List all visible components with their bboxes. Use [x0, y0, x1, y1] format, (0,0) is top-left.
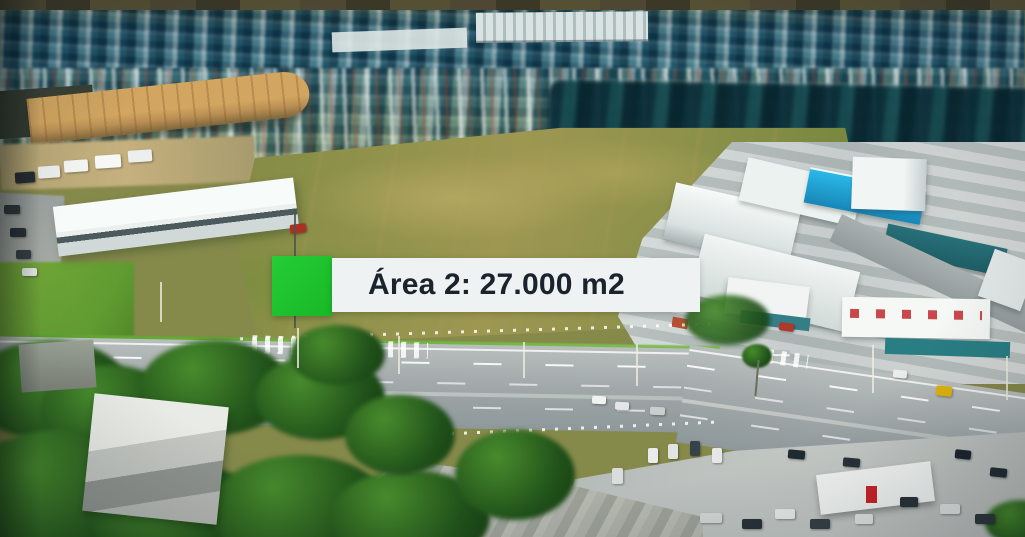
- car: [650, 407, 665, 416]
- aerial-photo: Área 2: 27.000 m2: [0, 0, 1025, 537]
- flag-pole: [294, 210, 296, 328]
- storefront-billboard: [842, 297, 991, 340]
- light-pole: [523, 342, 525, 378]
- tree: [345, 395, 455, 475]
- parked-car: [900, 497, 918, 507]
- parked-truck: [64, 159, 89, 173]
- parked-car: [648, 448, 658, 463]
- parked-truck: [95, 154, 122, 169]
- parked-car: [4, 205, 20, 214]
- parked-car: [855, 514, 873, 524]
- light-pole: [1006, 356, 1008, 400]
- parked-car: [16, 250, 31, 259]
- white-tower: [851, 157, 927, 212]
- car: [843, 457, 861, 467]
- shed-roof: [18, 339, 96, 392]
- parked-truck: [128, 149, 153, 163]
- parked-car: [10, 228, 26, 237]
- car: [615, 402, 629, 411]
- light-pole: [636, 344, 638, 386]
- parked-car: [742, 519, 762, 529]
- tree: [455, 430, 575, 520]
- lane-line: [684, 387, 1025, 439]
- light-pole: [160, 282, 162, 322]
- parked-car: [810, 519, 830, 529]
- tree: [290, 325, 385, 385]
- yellow-car: [936, 385, 953, 397]
- crosswalk: [388, 341, 429, 358]
- parked-car: [612, 468, 623, 484]
- apartment-block: [476, 11, 648, 42]
- light-pole: [398, 336, 400, 374]
- parked-truck: [15, 171, 36, 183]
- parked-truck: [38, 165, 61, 179]
- car: [990, 467, 1008, 478]
- tree: [685, 295, 770, 345]
- parked-car: [775, 509, 795, 519]
- horizon-strip: [0, 0, 1025, 10]
- parked-car: [712, 448, 722, 463]
- parked-car: [290, 223, 307, 234]
- red-booth: [866, 486, 877, 503]
- billboard-signs: [850, 309, 982, 320]
- parked-car: [668, 444, 678, 459]
- house-roof: [82, 393, 229, 524]
- car: [592, 396, 606, 405]
- dirt-yard: [0, 136, 256, 191]
- parked-car: [22, 268, 37, 276]
- parked-car: [940, 504, 960, 514]
- parked-car: [700, 513, 722, 523]
- photo-layers: [0, 0, 1025, 537]
- parked-car: [690, 441, 700, 456]
- parked-car: [975, 514, 995, 524]
- light-pole: [297, 328, 299, 368]
- light-pole: [872, 345, 874, 393]
- car: [955, 449, 972, 460]
- car: [893, 369, 908, 378]
- car: [788, 449, 806, 459]
